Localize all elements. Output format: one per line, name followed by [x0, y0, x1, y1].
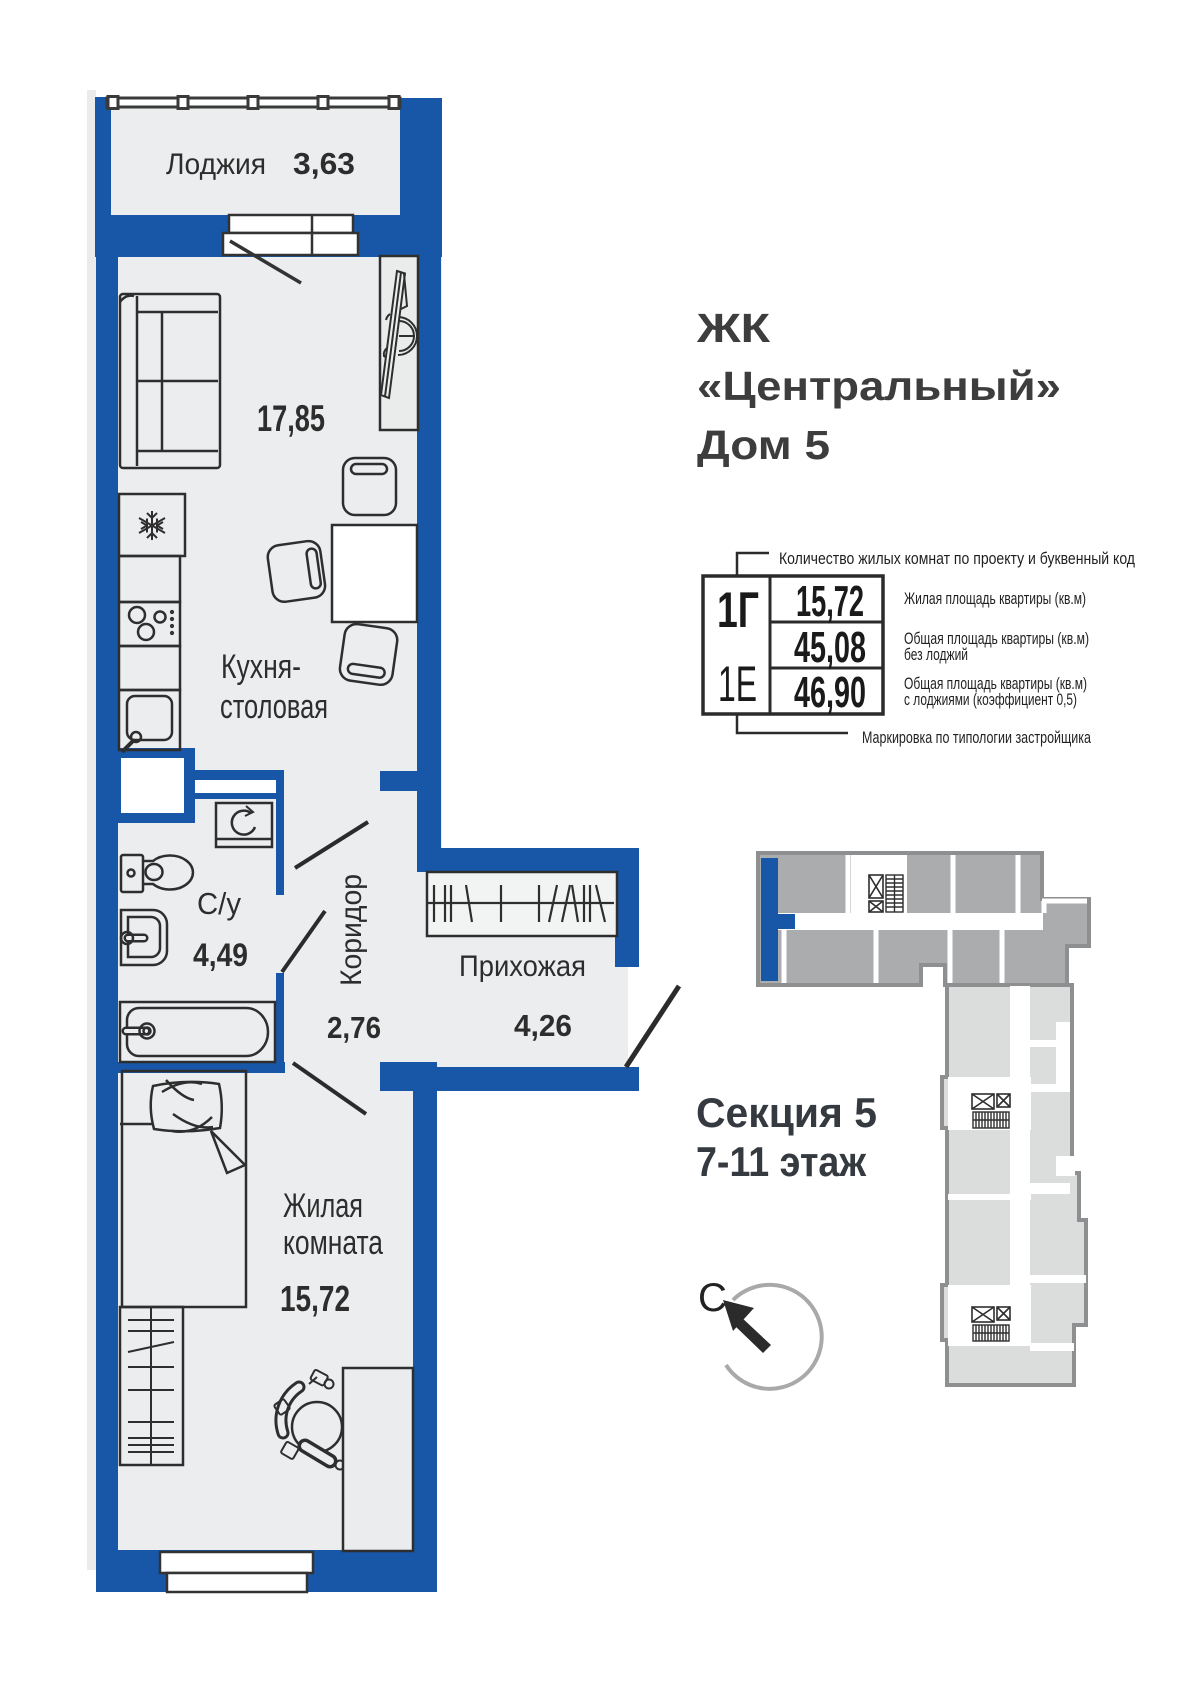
svg-text:столовая: столовая [220, 688, 328, 726]
svg-text:С/у: С/у [197, 886, 241, 921]
svg-text:С: С [698, 1276, 727, 1320]
svg-text:«Центральный»: «Центральный» [697, 363, 1061, 409]
svg-text:Секция 5: Секция 5 [696, 1089, 877, 1136]
svg-text:3,63: 3,63 [293, 146, 355, 181]
svg-text:Лоджия: Лоджия [166, 148, 266, 181]
svg-text:Жилая площадь квартиры (кв.м): Жилая площадь квартиры (кв.м) [904, 589, 1086, 608]
svg-text:46,90: 46,90 [794, 668, 866, 717]
svg-text:Количество жилых комнат по про: Количество жилых комнат по проекту и бук… [779, 549, 1135, 568]
svg-text:ЖК: ЖК [696, 305, 771, 351]
svg-text:без лоджий: без лоджий [904, 645, 968, 664]
svg-text:15,72: 15,72 [280, 1278, 350, 1319]
svg-text:Коридор: Коридор [335, 874, 368, 986]
svg-text:Прихожая: Прихожая [459, 950, 586, 983]
svg-text:с лоджиями (коэффициент 0,5): с лоджиями (коэффициент 0,5) [904, 690, 1077, 709]
svg-text:1Г: 1Г [717, 582, 759, 638]
svg-text:Дом 5: Дом 5 [697, 422, 830, 468]
svg-text:7-11 этаж: 7-11 этаж [696, 1138, 867, 1185]
svg-text:4,49: 4,49 [193, 937, 248, 973]
svg-text:2,76: 2,76 [327, 1010, 381, 1045]
svg-text:комната: комната [283, 1224, 383, 1262]
svg-text:Кухня-: Кухня- [221, 648, 301, 686]
svg-text:1Е: 1Е [718, 656, 757, 712]
svg-text:Жилая: Жилая [283, 1187, 363, 1225]
svg-text:Маркировка по типологии застро: Маркировка по типологии застройщика [862, 728, 1091, 747]
svg-text:4,26: 4,26 [514, 1008, 572, 1043]
svg-text:15,72: 15,72 [796, 577, 864, 626]
svg-text:17,85: 17,85 [257, 398, 325, 439]
svg-text:45,08: 45,08 [794, 623, 866, 672]
